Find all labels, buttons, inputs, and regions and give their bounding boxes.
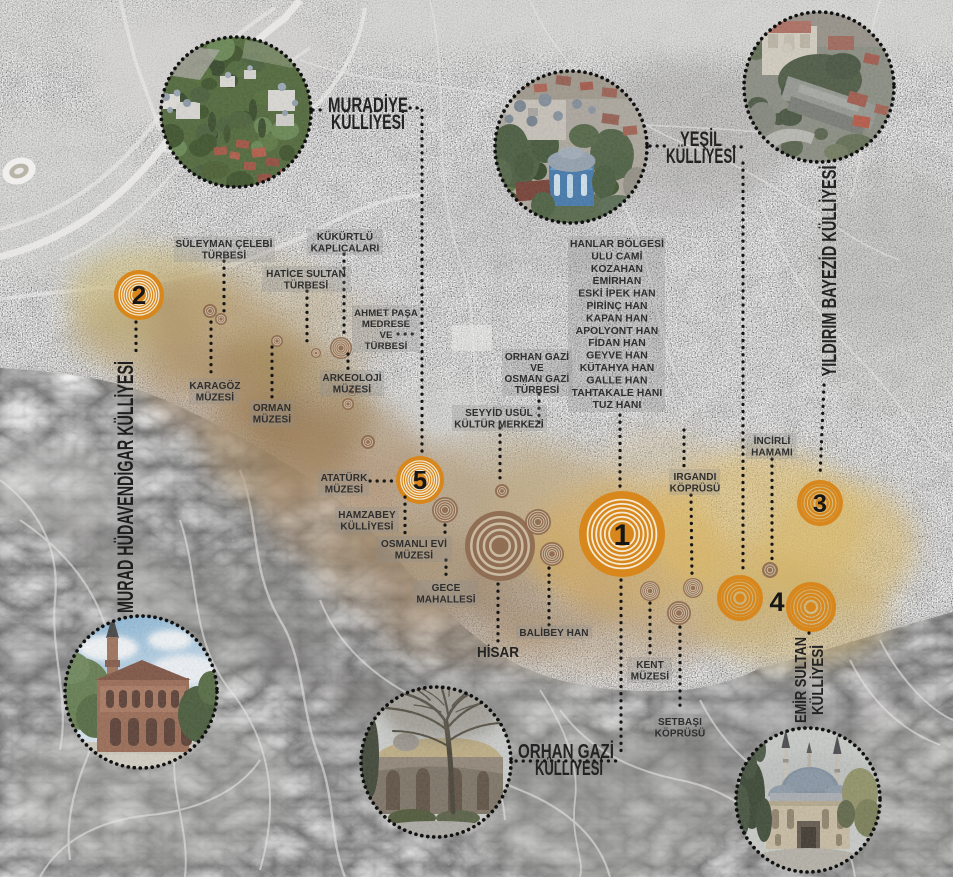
svg-text:ORHAN GAZİ: ORHAN GAZİ — [505, 350, 569, 363]
svg-text:KÜTAHYA HAN: KÜTAHYA HAN — [580, 361, 655, 374]
svg-text:MÜZESİ: MÜZESİ — [325, 482, 363, 495]
svg-text:MÜZESİ: MÜZESİ — [631, 669, 669, 682]
svg-text:KAPLICALARI: KAPLICALARI — [311, 243, 380, 254]
svg-text:MÜZESİ: MÜZESİ — [395, 548, 433, 561]
svg-text:KÖPRÜSÜ: KÖPRÜSÜ — [670, 481, 721, 494]
svg-text:KÜLLİYESİ: KÜLLİYESİ — [666, 145, 736, 168]
svg-text:MAHALLESİ: MAHALLESİ — [416, 592, 475, 605]
svg-text:KOZAHAN: KOZAHAN — [591, 264, 643, 275]
svg-text:TÜRBESİ: TÜRBESİ — [365, 341, 408, 352]
svg-text:BALİBEY HAN: BALİBEY HAN — [519, 626, 588, 639]
svg-text:PİRİNÇ HAN: PİRİNÇ HAN — [586, 299, 647, 312]
svg-text:MÜZESİ: MÜZESİ — [253, 412, 291, 425]
svg-text:HAMAMI: HAMAMI — [751, 447, 793, 458]
svg-text:OSMAN GAZİ: OSMAN GAZİ — [505, 372, 570, 385]
svg-text:VE: VE — [380, 330, 393, 341]
svg-text:TÜRBESİ: TÜRBESİ — [515, 383, 560, 396]
svg-text:5: 5 — [413, 465, 427, 495]
svg-text:ORMAN: ORMAN — [253, 403, 291, 414]
svg-text:HAMZABEY: HAMZABEY — [338, 510, 396, 521]
svg-text:VE: VE — [530, 363, 544, 374]
svg-text:GALLE HAN: GALLE HAN — [587, 375, 648, 386]
svg-text:FİDAN HAN: FİDAN HAN — [588, 336, 646, 349]
svg-text:KÜLLİYESİ: KÜLLİYESİ — [331, 111, 405, 134]
svg-text:2: 2 — [132, 280, 146, 310]
svg-text:KÜKÜRTLÜ: KÜKÜRTLÜ — [317, 230, 373, 243]
svg-text:ATATÜRK: ATATÜRK — [321, 471, 368, 484]
svg-text:SÜLEYMAN ÇELEBİ: SÜLEYMAN ÇELEBİ — [175, 237, 272, 250]
svg-text:KÜLLİYESİ: KÜLLİYESİ — [340, 519, 393, 532]
svg-text:İNCİRLİ: İNCİRLİ — [754, 434, 791, 447]
svg-text:MURAD HÜDAVENDİGAR KÜLLİYESİ: MURAD HÜDAVENDİGAR KÜLLİYESİ — [113, 361, 138, 613]
svg-text:KÜLLİYESİ: KÜLLİYESİ — [535, 757, 603, 780]
svg-text:KAPAN HAN: KAPAN HAN — [586, 313, 648, 324]
svg-text:APOLYONT HAN: APOLYONT HAN — [576, 326, 659, 337]
svg-text:TUZ HANI: TUZ HANI — [593, 400, 642, 411]
svg-text:IRGANDI: IRGANDI — [674, 472, 717, 483]
svg-text:OSMANLI EVİ: OSMANLI EVİ — [381, 537, 447, 550]
svg-text:TÜRBESİ: TÜRBESİ — [202, 248, 247, 261]
svg-text:AHMET PAŞA: AHMET PAŞA — [354, 308, 418, 319]
svg-text:KÖPRÜSÜ: KÖPRÜSÜ — [655, 726, 706, 739]
svg-text:MÜZESİ: MÜZESİ — [196, 390, 234, 403]
svg-text:HİSAR: HİSAR — [477, 644, 519, 661]
svg-text:ESKİ İPEK HAN: ESKİ İPEK HAN — [578, 287, 655, 300]
svg-text:GECE: GECE — [432, 583, 461, 594]
svg-text:KENT: KENT — [636, 660, 664, 671]
svg-text:TÜRBESİ: TÜRBESİ — [284, 278, 329, 291]
svg-text:SEYYİD USÜL: SEYYİD USÜL — [465, 406, 533, 419]
svg-text:HANLAR BÖLGESİ: HANLAR BÖLGESİ — [570, 237, 664, 250]
svg-text:SETBAŞI: SETBAŞI — [658, 717, 702, 728]
svg-text:3: 3 — [813, 490, 827, 518]
svg-text:TAHTAKALE HANI: TAHTAKALE HANI — [572, 388, 663, 399]
svg-text:HATİCE SULTAN: HATİCE SULTAN — [266, 267, 346, 280]
svg-text:KÜLLİYESİ: KÜLLİYESİ — [808, 645, 827, 715]
svg-text:ULU CAMİ: ULU CAMİ — [591, 249, 642, 262]
svg-text:EMİRHAN: EMİRHAN — [593, 274, 642, 287]
svg-text:KARAGÖZ: KARAGÖZ — [189, 379, 240, 392]
svg-text:1: 1 — [614, 519, 631, 552]
svg-text:EMİR SULTAN: EMİR SULTAN — [792, 637, 810, 723]
svg-text:MÜZESİ: MÜZESİ — [333, 382, 371, 395]
svg-text:YILDIRIM BAYEZİD KÜLLİYESİ: YILDIRIM BAYEZİD KÜLLİYESİ — [818, 166, 841, 377]
svg-text:GEYVE HAN: GEYVE HAN — [586, 351, 648, 362]
svg-text:MEDRESE: MEDRESE — [362, 319, 411, 330]
svg-text:4: 4 — [769, 587, 784, 617]
svg-text:ARKEOLOJİ: ARKEOLOJİ — [322, 371, 381, 384]
svg-text:KÜLTÜR MERKEZİ: KÜLTÜR MERKEZİ — [454, 417, 544, 430]
